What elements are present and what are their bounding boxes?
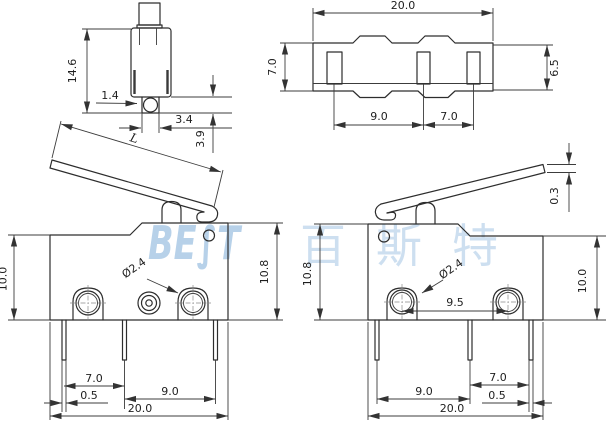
dim-side-boss-width: 3.4: [175, 113, 193, 126]
drawing-canvas: BE∫T 百斯特 14.6 1.4 3.4 3.9 20.0 7.0: [0, 0, 608, 429]
top-body-outline: [313, 36, 493, 98]
dim-fr-lever-tip-thickness: 0.3: [548, 187, 561, 205]
side-body-edge-marks: [135, 70, 168, 94]
dim-fl-pin-inset: 0.5: [80, 389, 98, 402]
fl-center-boss-mid: [142, 296, 157, 311]
dim-top-slot-pitch-b: 7.0: [440, 110, 458, 123]
side-dim-hole-leader: [96, 103, 137, 104]
fr-pins: [375, 320, 533, 360]
side-pivot-hole: [144, 98, 158, 112]
fl-extension-lines: [8, 121, 283, 420]
dim-side-body-height: 14.6: [66, 59, 79, 84]
dim-fl-height-back: 10.8: [258, 260, 271, 285]
dim-fr-pin-pitch-a: 9.0: [415, 385, 433, 398]
side-plunger-button: [139, 3, 160, 25]
side-mounting-boss: [142, 97, 159, 113]
top-terminal-slot-3: [467, 52, 480, 84]
front-left-view: L 10.0 10.8 Ø2.4 7.0 0.5 9.0 20.0: [0, 121, 283, 420]
dim-side-boss-height: 3.9: [194, 130, 207, 148]
dim-fl-pin-pitch-a: 7.0: [85, 372, 103, 385]
dim-fl-hole-diameter: Ø2.4: [120, 255, 149, 281]
dim-fr-pin-pitch-b: 7.0: [489, 371, 507, 384]
dim-fr-height-front: 10.0: [576, 269, 589, 294]
top-terminal-slot-1: [327, 52, 342, 84]
dim-fr-body-width: 20.0: [440, 402, 465, 415]
dim-top-slot-pitch-a: 9.0: [370, 110, 388, 123]
watermark: BE∫T 百斯特: [148, 216, 528, 273]
front-right-view: 0.3 10.8 10.0 Ø2.4 9.5 9.0 7.0 0.5 20.0: [301, 143, 606, 420]
dim-fl-lever-length: L: [127, 130, 140, 146]
fl-hole-dia-leader: [147, 279, 178, 293]
dim-top-body-depth: 7.0: [266, 58, 279, 76]
dim-top-cover-depth: 6.5: [548, 59, 561, 77]
side-extension-lines: [82, 29, 232, 133]
side-body-outline: [131, 28, 171, 97]
dim-fr-hole-pitch: 9.5: [446, 296, 464, 309]
fr-extension-lines: [314, 165, 606, 421]
dim-top-body-width: 20.0: [391, 0, 416, 12]
dim-fl-pin-pitch-b: 9.0: [161, 385, 179, 398]
fr-lever: [381, 165, 545, 214]
dim-side-hole-offset: 1.4: [101, 89, 119, 102]
dim-fl-body-width: 20.0: [128, 402, 153, 415]
fl-center-boss-inner: [146, 300, 152, 306]
fl-centerlines: [70, 285, 211, 321]
fr-lever-hinge-loop: [375, 204, 395, 220]
side-body-inner-lines: [140, 28, 157, 45]
watermark-chinese-text: 百斯特: [300, 219, 528, 273]
dim-fr-height-back: 10.8: [301, 262, 314, 287]
fr-hole-dia-leader: [422, 280, 443, 293]
fl-pins: [62, 320, 218, 360]
dim-fl-height-front: 10.0: [0, 267, 10, 292]
fl-lever: [50, 160, 212, 212]
top-terminal-slot-2: [417, 52, 430, 84]
side-view: 14.6 1.4 3.4 3.9: [66, 3, 232, 153]
top-view: 20.0 7.0 6.5 9.0 7.0: [266, 0, 561, 130]
dim-fr-pin-inset: 0.5: [488, 389, 506, 402]
